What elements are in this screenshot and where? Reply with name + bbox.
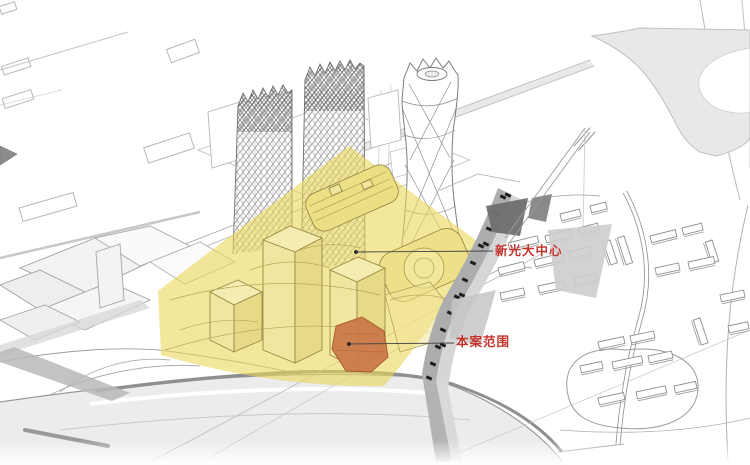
residential-slab xyxy=(674,381,697,394)
residential-slab xyxy=(648,351,673,365)
residential-slab xyxy=(728,322,749,335)
residential-slab xyxy=(580,361,603,374)
residential-slab xyxy=(598,337,625,351)
residential-slab xyxy=(650,230,677,245)
bottom-fade xyxy=(0,440,750,465)
residential-slab xyxy=(630,331,655,345)
residential-slab xyxy=(500,288,525,302)
residential-slab xyxy=(498,262,525,277)
residential-slab xyxy=(590,202,608,215)
residential-slab xyxy=(655,263,680,277)
residential-slab xyxy=(615,236,632,265)
residential-slab xyxy=(636,386,667,401)
annotation-label-project-scope: 本案范围 xyxy=(456,336,510,349)
annotation-label-center-tower: 新光大中心 xyxy=(495,245,563,258)
residential-slab xyxy=(682,223,704,237)
cursor-arrow-icon xyxy=(0,146,17,165)
park-shape xyxy=(592,28,750,156)
residential-slab xyxy=(691,318,708,346)
residential-slab xyxy=(560,209,582,223)
site-diagram-canvas: 新光大中心 本案范围 xyxy=(0,0,750,465)
residential-slab xyxy=(688,257,715,271)
residential-slab xyxy=(720,290,745,304)
site-diagram-drawing xyxy=(0,0,750,465)
